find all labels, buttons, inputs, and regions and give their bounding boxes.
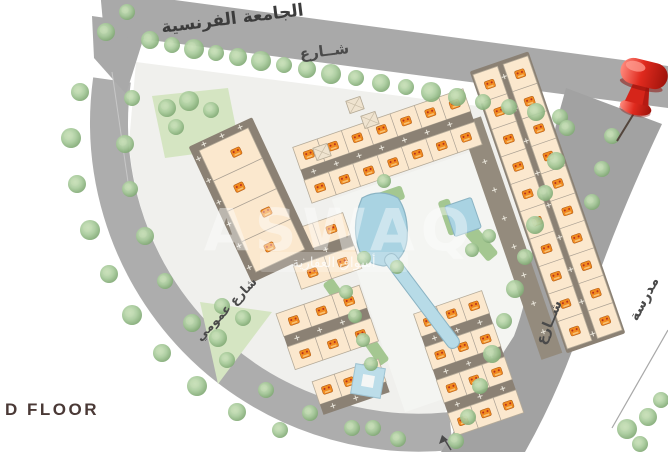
tree [448,88,466,106]
tree [116,135,134,153]
tree [506,280,524,298]
tree [251,51,271,71]
tree [527,103,545,121]
tree [71,83,89,101]
tree [472,378,488,394]
tree [184,39,204,59]
tree [421,82,441,102]
tree [537,185,553,201]
tree [100,265,118,283]
tree [547,152,565,170]
tree [517,249,533,265]
tree [122,181,138,197]
site-plan-screenshot: الجامعة الفرنسية شــارع شارع عمومي شــار… [0,0,668,452]
label-school: مدرسة [626,275,662,324]
tree [179,91,199,111]
tree [276,57,292,73]
tree [526,216,544,234]
tree [272,422,288,438]
tree [501,99,517,115]
tree [356,333,370,347]
tree [482,229,496,243]
tree [559,120,575,136]
tree [604,128,620,144]
tree [228,403,246,421]
tree [219,352,235,368]
tree [136,227,154,245]
tree [164,37,180,53]
tree [398,79,414,95]
tree [321,64,341,84]
floor-caption: D FLOOR [5,400,99,419]
tree [258,382,274,398]
tree [339,285,353,299]
tree [372,74,390,92]
tree [153,344,171,362]
tree [119,4,135,20]
tree [122,305,142,325]
tree [141,31,159,49]
tree [460,409,476,425]
tree [584,194,600,210]
tree [632,436,648,452]
tree [348,309,362,323]
tree [157,273,173,289]
watermark-subtitle: أسواق العقارية [292,253,375,271]
tree [594,161,610,177]
tree [61,128,81,148]
tree [97,23,115,41]
tree [187,376,207,396]
tree [235,310,251,326]
tree [448,433,464,449]
tree [377,174,391,188]
tree [639,408,657,426]
tree [302,405,318,421]
tree [496,313,512,329]
tree [229,48,247,66]
tree [208,45,224,61]
tree [653,392,668,408]
tree [68,175,86,193]
tree [390,431,406,447]
tree [365,420,381,436]
tree [124,90,140,106]
watermark: ASWAQ أسواق العقارية [204,196,476,272]
tree [348,70,364,86]
tree [364,357,378,371]
tree [203,102,219,118]
tree [168,119,184,135]
tree [80,220,100,240]
tree [158,99,176,117]
site-plan-svg: الجامعة الفرنسية شــارع شارع عمومي شــار… [0,0,668,452]
tree [344,420,360,436]
tree [475,94,491,110]
tree [483,345,501,363]
tree [617,419,637,439]
